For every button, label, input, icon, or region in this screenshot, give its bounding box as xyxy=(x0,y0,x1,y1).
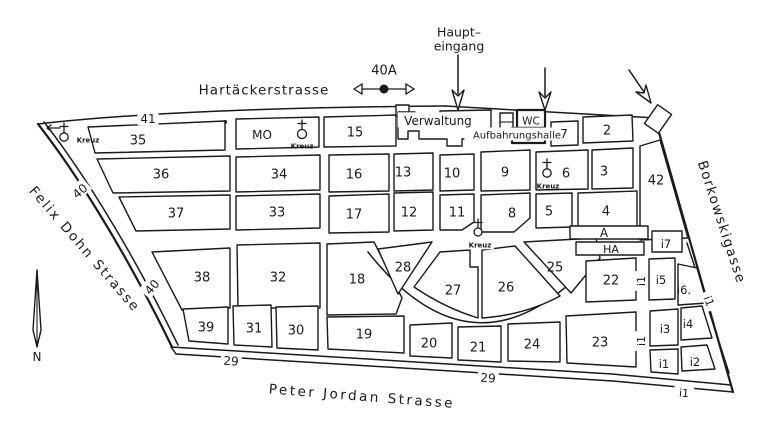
northeast-gate-building xyxy=(644,105,671,134)
label-block-i4: i4 xyxy=(683,317,694,331)
block-5-outline xyxy=(536,193,572,228)
label-block-32: 32 xyxy=(270,271,287,286)
corridor-a-outline xyxy=(570,226,648,239)
block-42-outline xyxy=(640,140,688,240)
label-block-i2: i2 xyxy=(690,355,701,369)
label-block-36: 36 xyxy=(153,168,170,183)
label-block-2: 2 xyxy=(603,124,611,139)
compass xyxy=(33,270,41,347)
label-block-16: 16 xyxy=(346,168,363,183)
label-aufbahrungshalle: Aufbahrungshalle xyxy=(473,131,561,142)
label-block-19: 19 xyxy=(356,328,373,343)
label-wc: WC xyxy=(522,116,540,128)
label-path-i1-bottom: i1 xyxy=(679,387,690,401)
label-path-41: 41 xyxy=(140,112,155,126)
label-street-hartaeckerstrasse: Hartäckerstrasse xyxy=(199,83,330,99)
label-block-38: 38 xyxy=(194,271,211,286)
label-corridor-a: A xyxy=(600,226,609,240)
label-block-i6: i6. xyxy=(677,283,691,297)
label-block-i7: i7 xyxy=(661,237,672,251)
label-street-peter-jordan-strasse: Peter Jordan Strasse xyxy=(268,381,455,412)
block-35-outline xyxy=(88,121,225,153)
marker-40a-icon xyxy=(354,84,414,94)
label-block-23: 23 xyxy=(592,336,609,351)
label-verwaltung: Verwaltung xyxy=(404,114,472,128)
label-block-34: 34 xyxy=(271,168,288,183)
block-38-outline xyxy=(152,248,230,310)
label-block-7: 7 xyxy=(560,127,568,141)
label-block-13: 13 xyxy=(395,166,412,181)
boundary-bottom-leftcap xyxy=(171,347,176,354)
label-block-9: 9 xyxy=(501,166,509,181)
label-block-37: 37 xyxy=(168,207,185,222)
corner-arrow-icon xyxy=(47,125,60,131)
label-path-29-left: 29 xyxy=(223,354,239,369)
label-block-39: 39 xyxy=(198,321,215,336)
boundary-bottom-outer xyxy=(176,354,733,392)
label-block-i1: i1 xyxy=(659,357,670,371)
label-block-3: 3 xyxy=(600,165,608,180)
label-compass-n: N xyxy=(33,350,42,364)
label-block-35: 35 xyxy=(130,134,147,149)
label-block-4: 4 xyxy=(602,205,610,220)
label-block-30: 30 xyxy=(288,324,305,339)
label-kreuz-west: Kreuz xyxy=(77,136,100,144)
label-block-28: 28 xyxy=(395,261,412,276)
cemetery-plan-svg: HartäckerstrasseFelix Dohn StrasseBorkow… xyxy=(0,0,768,422)
gate-entrance-arrow-head xyxy=(636,85,651,103)
cemetery-map: HartäckerstrasseFelix Dohn StrasseBorkow… xyxy=(0,0,768,422)
label-kreuz-mo: Kreuz xyxy=(291,142,314,150)
label-block-24: 24 xyxy=(524,338,541,353)
block-3-outline xyxy=(592,148,633,189)
label-block-27: 27 xyxy=(445,284,462,299)
gate-entrance-arrow-line xyxy=(629,70,644,92)
label-haupteingang-line1: Haupt– xyxy=(437,24,481,39)
label-block-42: 42 xyxy=(648,174,665,189)
label-block-i3: i3 xyxy=(660,322,671,336)
label-haupteingang-line2: eingang xyxy=(434,38,485,53)
label-block-25: 25 xyxy=(547,261,564,276)
label-marker-40a: 40A xyxy=(371,64,397,79)
label-block-31: 31 xyxy=(246,322,263,337)
block-8-outline xyxy=(481,193,530,232)
label-block-8: 8 xyxy=(508,207,516,222)
label-block-33: 33 xyxy=(269,206,286,221)
label-block-12: 12 xyxy=(401,206,418,221)
kreuz-west-icon xyxy=(60,123,68,141)
label-block-i5: i5 xyxy=(656,273,667,287)
label-mo: MO xyxy=(252,128,272,142)
grave-blocks xyxy=(88,115,715,374)
label-block-20: 20 xyxy=(421,337,438,352)
label-block-22: 22 xyxy=(603,274,620,289)
label-kreuz-block6: Kreuz xyxy=(537,182,560,190)
label-kreuz-central: Kreuz xyxy=(469,241,492,249)
label-path-i1-vertical-upper: i1 xyxy=(635,276,648,286)
label-block-15: 15 xyxy=(347,126,364,141)
label-corridor-ha: HA xyxy=(603,243,619,256)
label-block-21: 21 xyxy=(470,341,487,356)
label-block-18: 18 xyxy=(349,273,366,288)
label-block-11: 11 xyxy=(449,206,466,221)
label-street-borkowskigasse: Borkowskigasse xyxy=(694,159,749,286)
label-block-17: 17 xyxy=(346,208,363,223)
label-path-i1-vertical-lower: i1 xyxy=(635,336,648,346)
label-block-26: 26 xyxy=(498,281,515,296)
label-block-6: 6 xyxy=(562,167,570,182)
label-block-10: 10 xyxy=(444,167,461,182)
entrance-arrows xyxy=(452,55,651,110)
label-path-29-right: 29 xyxy=(480,371,496,386)
label-block-5: 5 xyxy=(545,205,553,220)
